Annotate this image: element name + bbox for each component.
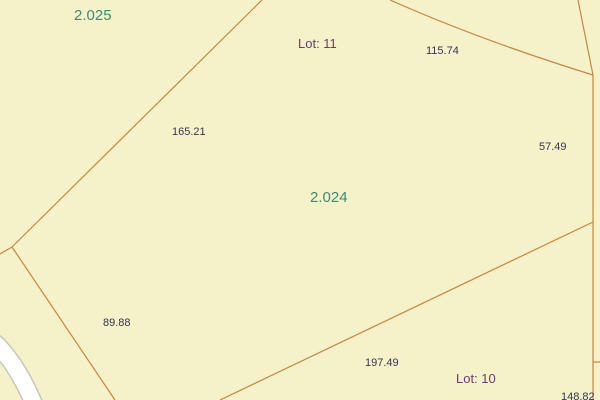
lot-label: Lot: 10 xyxy=(456,372,496,386)
parcel-boundaries xyxy=(0,0,600,400)
map-lines-layer xyxy=(0,0,600,400)
parcel-map-canvas[interactable]: 2.025 Lot: 11 115.74 165.21 57.49 2.024 … xyxy=(0,0,600,400)
road-band xyxy=(0,342,34,400)
parcel-id-label: 2.025 xyxy=(74,8,112,25)
measurement-label: 115.74 xyxy=(426,45,459,57)
measurement-label: 165.21 xyxy=(172,126,206,138)
boundary-top-right-stub xyxy=(578,0,593,75)
boundary-bottom-diagonal xyxy=(220,222,593,400)
measurement-label: 57.49 xyxy=(539,141,567,153)
boundary-left-stub xyxy=(0,247,12,254)
measurement-label: 148.82 xyxy=(561,391,595,400)
boundary-upper-left xyxy=(12,0,262,247)
lot-label: Lot: 11 xyxy=(298,37,337,51)
boundary-top-curve xyxy=(390,0,593,75)
measurement-label: 89.88 xyxy=(103,317,131,329)
parcel-id-label: 2.024 xyxy=(310,190,348,207)
measurement-label: 197.49 xyxy=(365,357,399,369)
